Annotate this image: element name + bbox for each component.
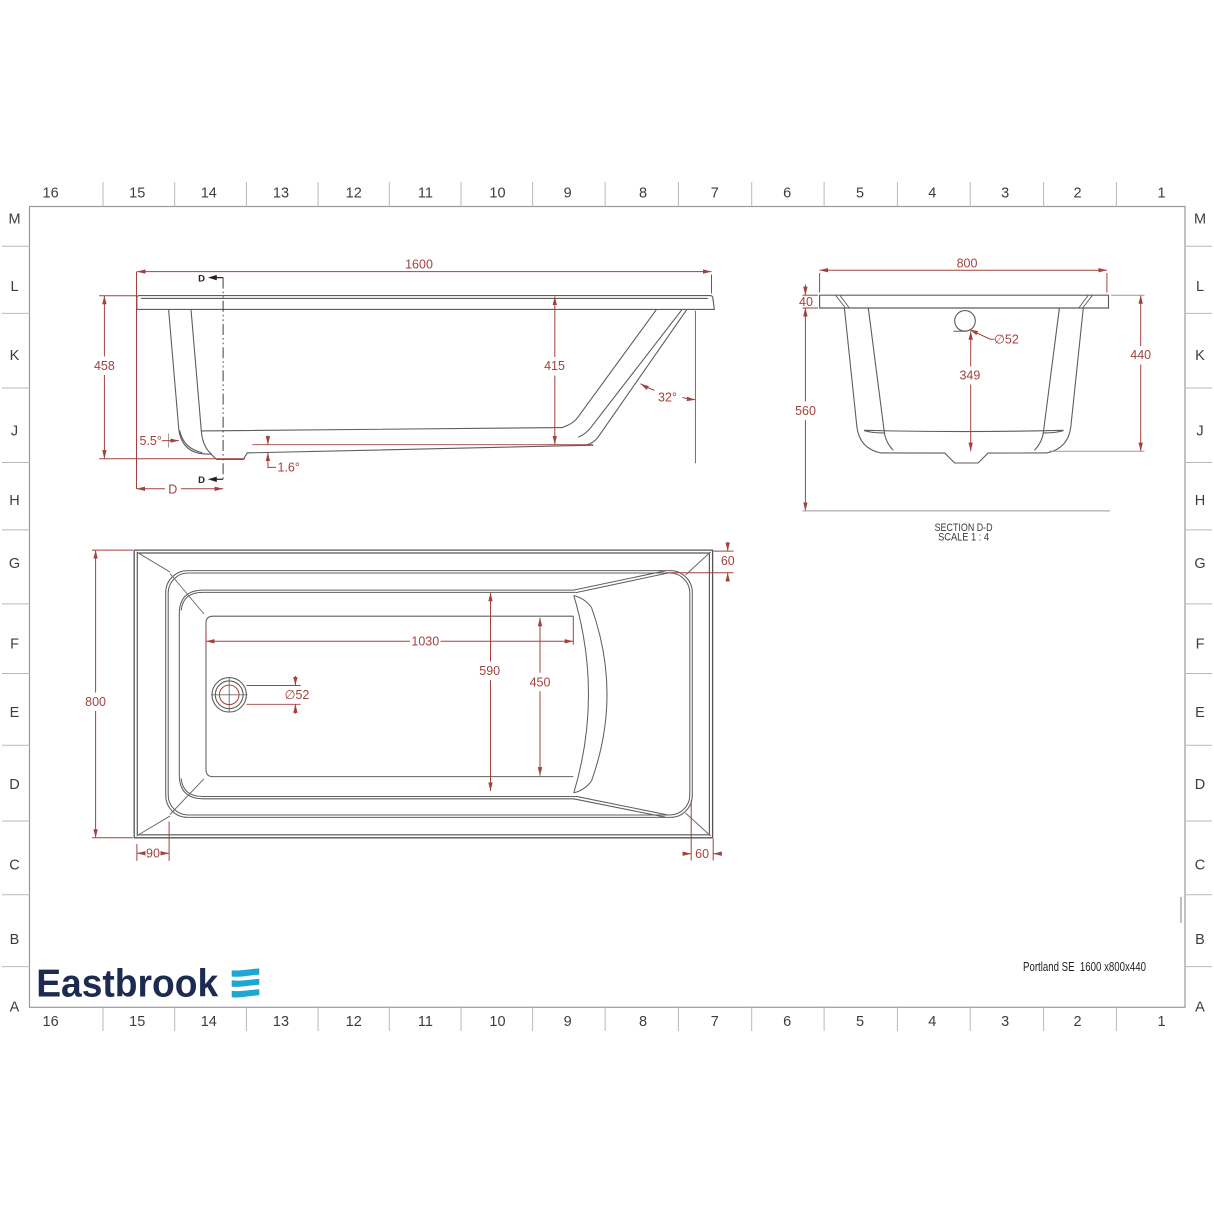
- svg-text:15: 15: [129, 1014, 145, 1030]
- svg-text:B: B: [10, 932, 20, 948]
- svg-text:458: 458: [94, 359, 115, 373]
- svg-text:M: M: [8, 212, 20, 228]
- svg-text:11: 11: [418, 185, 433, 201]
- svg-text:A: A: [10, 999, 20, 1015]
- svg-text:3: 3: [1001, 1014, 1009, 1030]
- svg-text:SCALE 1 : 4: SCALE 1 : 4: [938, 532, 989, 544]
- svg-text:2: 2: [1073, 1014, 1081, 1030]
- svg-text:C: C: [1195, 858, 1205, 874]
- svg-text:12: 12: [346, 185, 362, 201]
- svg-text:1: 1: [1157, 1014, 1165, 1030]
- svg-text:L: L: [10, 279, 18, 295]
- svg-text:13: 13: [273, 1014, 289, 1030]
- svg-text:K: K: [1195, 348, 1205, 364]
- svg-text:H: H: [1195, 493, 1205, 509]
- svg-text:5: 5: [856, 1014, 864, 1030]
- svg-text:800: 800: [85, 695, 106, 709]
- svg-text:8: 8: [639, 185, 647, 201]
- svg-text:5.5°: 5.5°: [140, 434, 162, 448]
- svg-text:10: 10: [489, 1014, 505, 1030]
- svg-text:L: L: [1196, 279, 1204, 295]
- svg-text:E: E: [10, 705, 20, 721]
- svg-text:1.6°: 1.6°: [278, 461, 300, 475]
- svg-text:H: H: [9, 493, 19, 509]
- svg-text:M: M: [1194, 212, 1206, 228]
- svg-text:6: 6: [783, 185, 791, 201]
- svg-text:590: 590: [479, 664, 500, 678]
- svg-text:1600: 1600: [405, 258, 433, 272]
- svg-text:16: 16: [43, 185, 59, 201]
- svg-text:60: 60: [695, 847, 709, 861]
- svg-text:5: 5: [856, 185, 864, 201]
- svg-text:∅52: ∅52: [285, 688, 310, 702]
- svg-text:J: J: [11, 423, 18, 439]
- svg-text:2: 2: [1073, 185, 1081, 201]
- svg-text:440: 440: [1130, 348, 1151, 362]
- svg-text:D: D: [9, 777, 19, 793]
- svg-text:32°: 32°: [658, 391, 677, 405]
- svg-text:Portland SE 1600 x800x440: Portland SE 1600 x800x440: [1023, 959, 1146, 974]
- svg-text:K: K: [10, 348, 20, 364]
- svg-text:15: 15: [129, 185, 145, 201]
- svg-text:800: 800: [957, 256, 978, 270]
- svg-text:11: 11: [418, 1014, 433, 1030]
- svg-text:D: D: [1195, 777, 1205, 793]
- svg-text:12: 12: [346, 1014, 362, 1030]
- svg-text:60: 60: [721, 554, 735, 568]
- svg-text:9: 9: [564, 1014, 572, 1030]
- svg-text:Eastbrook: Eastbrook: [36, 963, 218, 1006]
- svg-text:D: D: [198, 475, 205, 486]
- svg-text:90: 90: [146, 847, 160, 861]
- svg-text:A: A: [1195, 999, 1205, 1015]
- svg-text:∅52: ∅52: [994, 332, 1019, 346]
- svg-text:450: 450: [530, 675, 551, 689]
- svg-text:G: G: [9, 556, 20, 572]
- svg-text:D: D: [198, 274, 205, 285]
- svg-text:415: 415: [544, 359, 565, 373]
- svg-text:40: 40: [799, 295, 813, 309]
- svg-text:14: 14: [201, 1014, 217, 1030]
- svg-text:D: D: [168, 483, 177, 497]
- svg-text:3: 3: [1001, 185, 1009, 201]
- svg-text:7: 7: [711, 1014, 719, 1030]
- svg-text:16: 16: [43, 1014, 59, 1030]
- svg-text:F: F: [1196, 637, 1205, 653]
- svg-text:1030: 1030: [411, 635, 439, 649]
- svg-text:F: F: [10, 637, 19, 653]
- svg-text:9: 9: [564, 185, 572, 201]
- svg-text:1: 1: [1157, 185, 1165, 201]
- svg-text:8: 8: [639, 1014, 647, 1030]
- svg-text:B: B: [1195, 932, 1205, 948]
- svg-text:349: 349: [959, 369, 980, 383]
- svg-text:14: 14: [201, 185, 217, 201]
- svg-text:J: J: [1196, 423, 1203, 439]
- svg-text:13: 13: [273, 185, 289, 201]
- svg-text:4: 4: [928, 185, 936, 201]
- svg-text:G: G: [1194, 556, 1205, 572]
- svg-text:6: 6: [783, 1014, 791, 1030]
- svg-text:560: 560: [795, 404, 816, 418]
- svg-text:10: 10: [489, 185, 505, 201]
- svg-text:E: E: [1195, 705, 1205, 721]
- svg-text:7: 7: [711, 185, 719, 201]
- svg-text:4: 4: [928, 1014, 936, 1030]
- svg-text:C: C: [9, 858, 19, 874]
